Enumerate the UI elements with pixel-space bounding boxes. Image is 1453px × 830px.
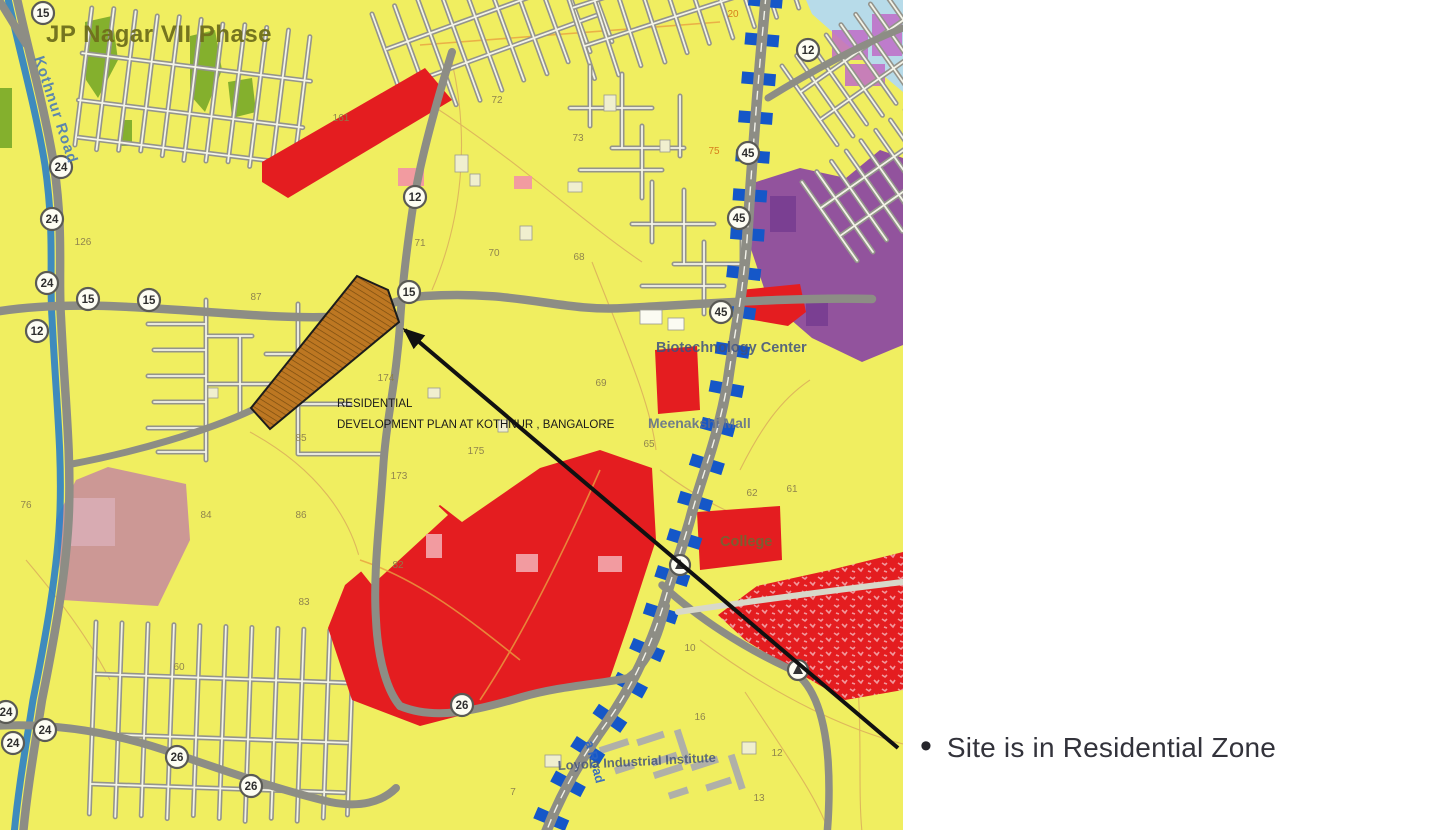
road-number-badge: 15 (138, 289, 160, 311)
svg-text:45: 45 (715, 307, 728, 319)
svg-text:68: 68 (573, 252, 585, 263)
slide: 15 24 24 24 12 15 15 15 12 12 45 45 45 2… (0, 0, 1453, 830)
svg-text:12: 12 (771, 748, 783, 759)
svg-text:20: 20 (727, 9, 739, 20)
road-number-badge: 45 (728, 207, 750, 229)
road-number-badge: 12 (26, 320, 48, 342)
svg-text:84: 84 (200, 510, 212, 521)
road-number-badge: 26 (451, 694, 473, 716)
road-number-badge: 12 (404, 186, 426, 208)
svg-text:161: 161 (333, 113, 350, 124)
road-number-badge: 15 (77, 288, 99, 310)
road-number-badge: 26 (240, 775, 262, 797)
road-number-badge: 45 (737, 142, 759, 164)
svg-text:13: 13 (753, 793, 765, 804)
poi-biotechnology-center: Biotechnology Center (656, 340, 807, 356)
poi-meenakshi-mall: Meenakshi Mall (648, 415, 751, 431)
zoning-map: 15 24 24 24 12 15 15 15 12 12 45 45 45 2… (0, 0, 903, 830)
svg-text:73: 73 (572, 133, 584, 144)
svg-text:15: 15 (37, 8, 50, 20)
road-number-badge: 24 (34, 719, 56, 741)
svg-text:87: 87 (250, 292, 262, 303)
svg-text:DEVELOPMENT PLAN AT KOTHNUR ,: DEVELOPMENT PLAN AT KOTHNUR , BANGALORE (337, 419, 615, 431)
svg-text:10: 10 (684, 643, 696, 654)
svg-text:16: 16 (694, 712, 706, 723)
svg-text:24: 24 (39, 725, 52, 737)
svg-text:RESIDENTIAL: RESIDENTIAL (337, 398, 413, 410)
svg-text:15: 15 (403, 287, 416, 299)
svg-text:12: 12 (802, 45, 815, 57)
area-title-label: JP Nagar VII Phase (46, 21, 272, 48)
svg-text:76: 76 (20, 500, 32, 511)
svg-text:26: 26 (456, 700, 469, 712)
svg-text:86: 86 (295, 510, 307, 521)
road-number-badge: 24 (41, 208, 63, 230)
svg-text:75: 75 (708, 146, 720, 157)
road-number-badge: 24 (0, 701, 17, 723)
svg-text:69: 69 (595, 378, 607, 389)
svg-text:24: 24 (46, 214, 59, 226)
svg-text:175: 175 (468, 446, 485, 457)
road-number-badge: 24 (36, 272, 58, 294)
bullet-icon: • (920, 729, 932, 763)
site-note-text: Site is in Residential Zone (947, 732, 1276, 764)
svg-text:45: 45 (742, 148, 755, 160)
svg-text:45: 45 (733, 213, 746, 225)
svg-text:71: 71 (414, 238, 426, 249)
svg-text:72: 72 (491, 95, 503, 106)
svg-text:60: 60 (173, 662, 185, 673)
svg-text:65: 65 (643, 439, 655, 450)
road-number-badge: 26 (166, 746, 188, 768)
svg-text:12: 12 (31, 326, 44, 338)
poi-college: College (720, 534, 772, 550)
svg-text:85: 85 (295, 433, 307, 444)
svg-text:173: 173 (391, 471, 408, 482)
road-number-badge: 24 (2, 732, 24, 754)
svg-text:61: 61 (786, 484, 798, 495)
svg-text:70: 70 (488, 248, 500, 259)
svg-text:24: 24 (0, 707, 13, 719)
svg-text:24: 24 (7, 738, 20, 750)
site-note: • Site is in Residential Zone (920, 731, 1276, 765)
svg-text:83: 83 (298, 597, 310, 608)
svg-text:15: 15 (82, 294, 95, 306)
svg-text:82: 82 (392, 560, 404, 571)
svg-text:12: 12 (409, 192, 422, 204)
zoning-map-image: 15 24 24 24 12 15 15 15 12 12 45 45 45 2… (0, 0, 903, 830)
svg-text:26: 26 (171, 752, 184, 764)
svg-text:174: 174 (378, 373, 395, 384)
svg-text:126: 126 (75, 237, 92, 248)
road-number-badge: 15 (398, 281, 420, 303)
svg-text:62: 62 (746, 488, 758, 499)
svg-text:15: 15 (143, 295, 156, 307)
road-number-badge: 12 (797, 39, 819, 61)
road-number-badge: 45 (710, 301, 732, 323)
svg-text:7: 7 (510, 787, 516, 798)
svg-text:26: 26 (245, 781, 258, 793)
svg-text:24: 24 (41, 278, 54, 290)
